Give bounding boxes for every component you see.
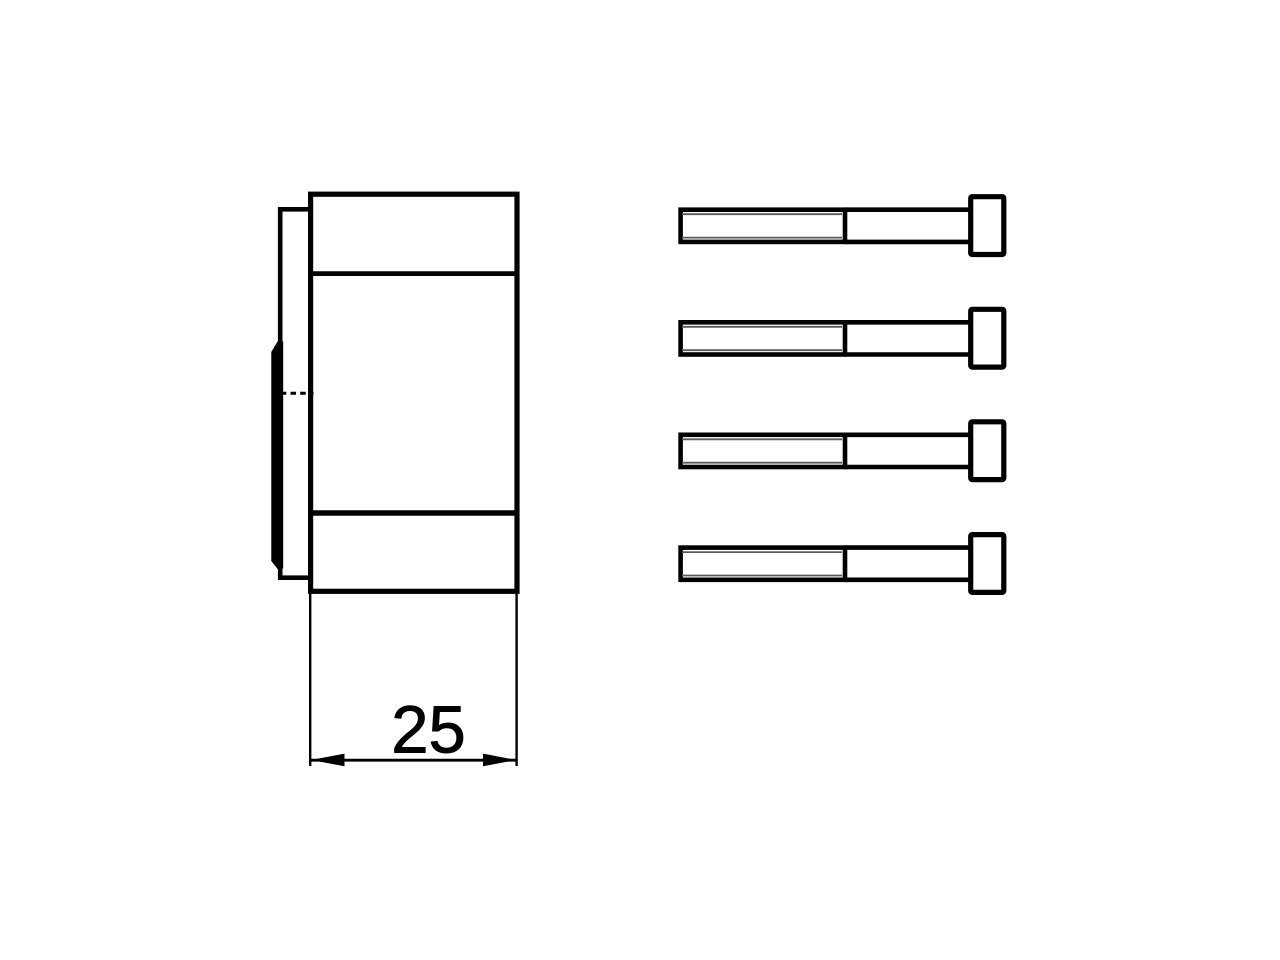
svg-text:25: 25 xyxy=(391,692,466,767)
